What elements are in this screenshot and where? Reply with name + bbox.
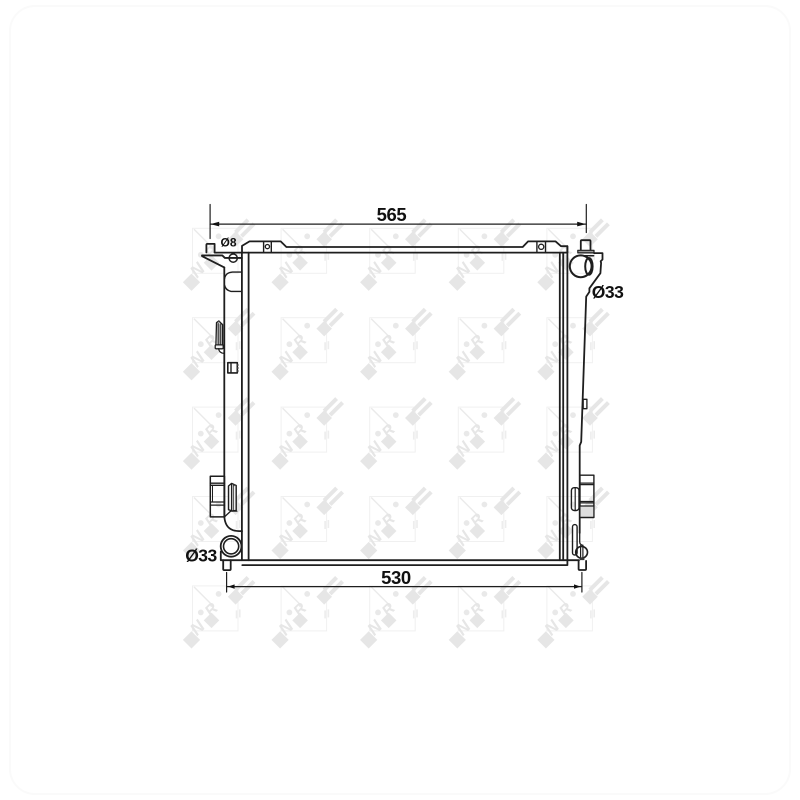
svg-text:Ø8: Ø8 (221, 236, 237, 250)
svg-text:565: 565 (377, 204, 407, 225)
svg-text:Ø33: Ø33 (185, 545, 217, 565)
svg-text:Ø33: Ø33 (592, 282, 624, 302)
svg-text:530: 530 (381, 567, 411, 588)
